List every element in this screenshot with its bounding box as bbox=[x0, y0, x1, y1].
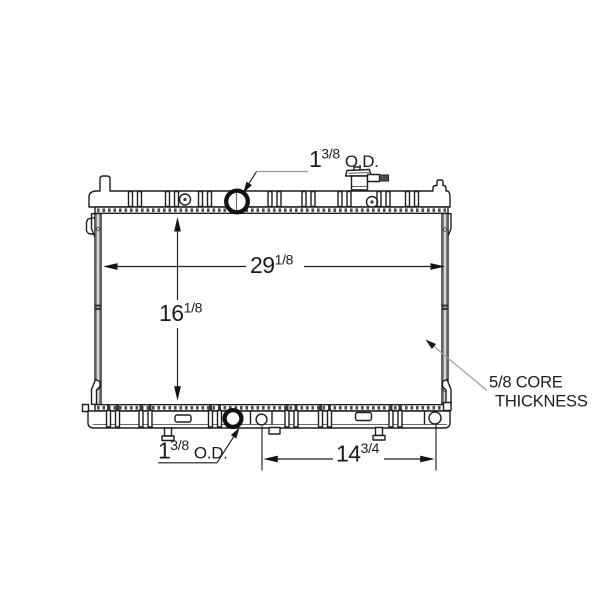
channel-clip-mark bbox=[442, 305, 447, 307]
overflow-tube-tip bbox=[380, 175, 389, 181]
right-end-flag bbox=[444, 403, 452, 411]
overflow-tube bbox=[368, 175, 380, 182]
left-side-channel bbox=[95, 214, 101, 405]
channel-clip-mark bbox=[95, 308, 100, 310]
drawing-stage: 291/8 161/8 143/4 13/8O.D. 1 bbox=[0, 0, 600, 600]
channel-clip-mark bbox=[95, 305, 100, 307]
background bbox=[0, 0, 600, 600]
core-thickness-label-line1: 5/8 CORE bbox=[489, 374, 563, 392]
filler-neck bbox=[352, 176, 368, 190]
radiator-technical-diagram: 291/8 161/8 143/4 13/8O.D. 1 bbox=[0, 0, 600, 600]
top-crimp-strip bbox=[95, 207, 448, 213]
bottom-outlet-port bbox=[225, 410, 242, 427]
mount-peg bbox=[269, 428, 280, 435]
channel-clip-mark bbox=[442, 308, 447, 310]
top-inlet-port bbox=[226, 191, 248, 213]
core-thickness-label-line2: THICKNESS bbox=[495, 393, 588, 411]
right-side-channel bbox=[442, 214, 448, 405]
